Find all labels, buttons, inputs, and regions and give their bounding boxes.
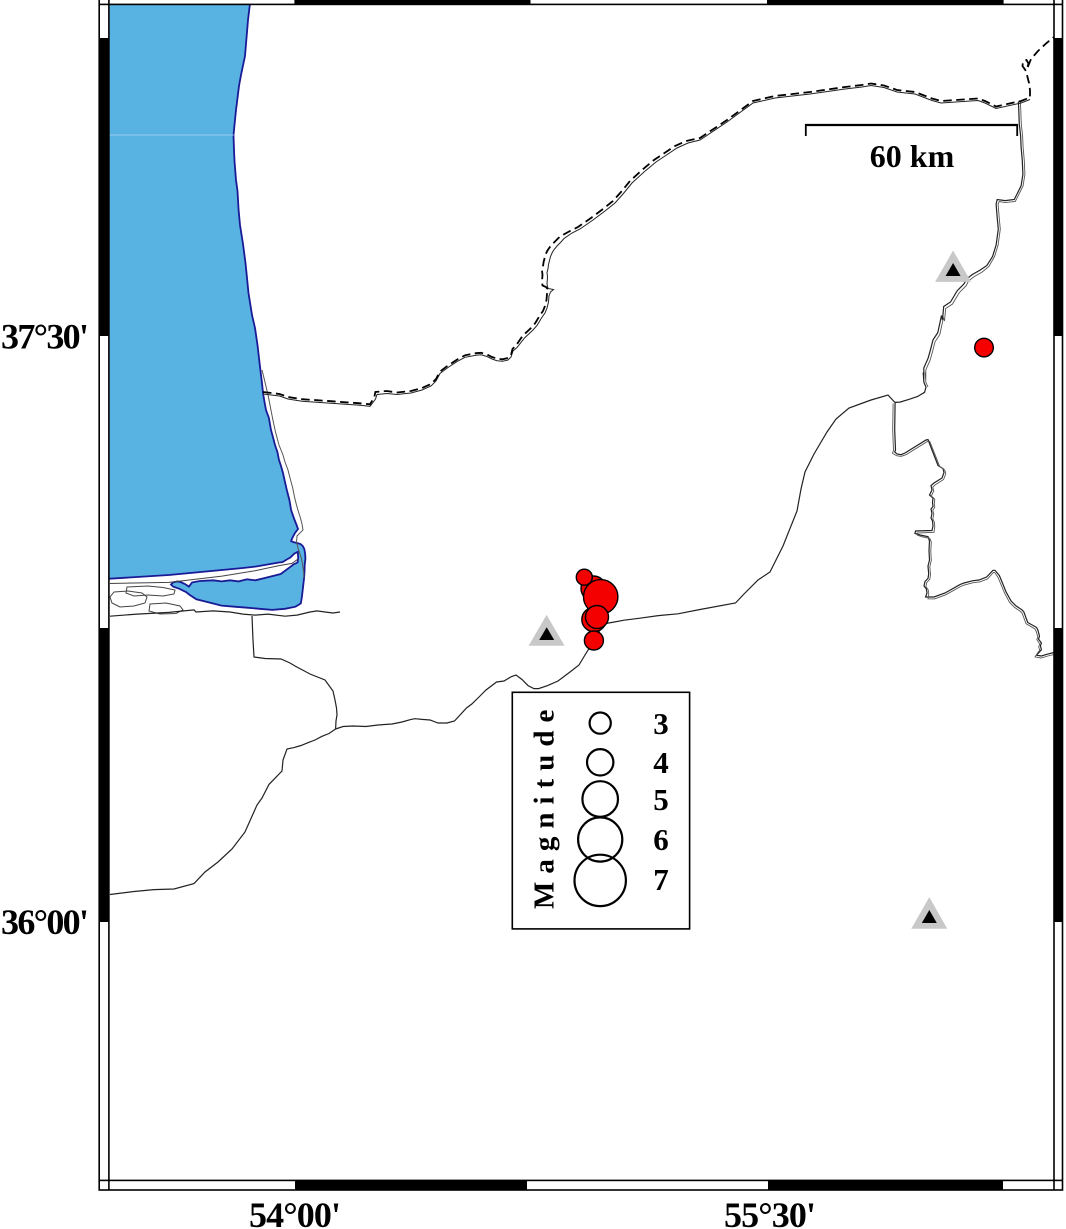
svg-text:37°30': 37°30' [1,317,89,357]
svg-text:36°00': 36°00' [1,902,89,942]
svg-text:4: 4 [653,745,669,780]
svg-text:54°00': 54°00' [249,1195,341,1229]
svg-text:3: 3 [653,706,669,741]
svg-text:55°30': 55°30' [724,1195,816,1229]
svg-text:60 km: 60 km [870,138,955,174]
svg-text:5: 5 [653,782,669,817]
svg-text:6: 6 [653,822,669,857]
svg-text:7: 7 [653,862,669,897]
svg-text:Magnitude: Magnitude [529,702,561,909]
